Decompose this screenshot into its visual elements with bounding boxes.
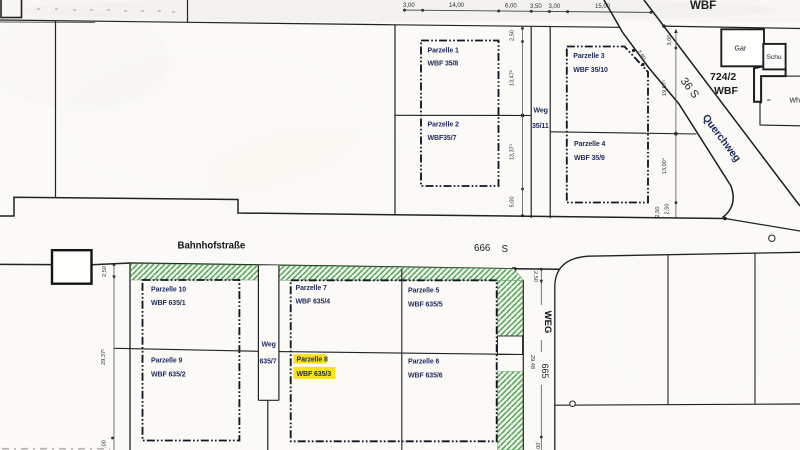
svg-text:WBF 35/10: WBF 35/10 [573, 67, 608, 74]
svg-text:Parzelle 5: Parzelle 5 [408, 288, 440, 295]
svg-text:Weg: Weg [534, 108, 548, 115]
svg-text:Parzelle 10: Parzelle 10 [151, 287, 186, 294]
svg-text:19,67⁵: 19,67⁵ [661, 80, 668, 96]
svg-text:2,50: 2,50 [532, 271, 538, 282]
svg-text:Parzelle 1: Parzelle 1 [428, 48, 460, 55]
svg-text:724/2: 724/2 [710, 71, 736, 83]
svg-text:3,50: 3,50 [530, 4, 542, 10]
svg-text:2,50: 2,50 [665, 204, 671, 215]
svg-text:Weg: Weg [262, 342, 276, 349]
svg-text:Schu: Schu [767, 54, 782, 61]
svg-text:29,37²: 29,37² [101, 349, 107, 365]
svg-text:,00: ,00 [102, 440, 108, 448]
svg-text:Parzelle 7: Parzelle 7 [296, 285, 328, 292]
svg-text:WBF 635/5: WBF 635/5 [408, 302, 443, 309]
svg-text:2,50: 2,50 [655, 207, 661, 218]
svg-text:3,00: 3,00 [549, 4, 561, 10]
svg-text:3,00: 3,00 [403, 3, 415, 9]
svg-text:3,00: 3,00 [667, 35, 673, 46]
svg-text:6,00: 6,00 [505, 4, 517, 10]
svg-text:WBF 635/6: WBF 635/6 [408, 373, 443, 380]
svg-text:13,37⁴: 13,37⁴ [509, 143, 516, 160]
svg-text:WBF: WBF [714, 85, 738, 97]
svg-text:29,48: 29,48 [529, 355, 535, 369]
svg-text:∞: ∞ [767, 98, 771, 104]
svg-text:WBF: WBF [690, 0, 716, 12]
svg-text:Parzelle 9: Parzelle 9 [151, 358, 183, 365]
svg-text:5,00: 5,00 [510, 197, 516, 208]
svg-text:S: S [502, 244, 509, 255]
svg-text:666: 666 [474, 243, 491, 254]
svg-text:,00: ,00 [534, 441, 540, 449]
svg-text:2,50: 2,50 [510, 30, 516, 41]
svg-text:WBF 635/3: WBF 635/3 [297, 371, 332, 378]
svg-text:665: 665 [540, 363, 550, 378]
svg-text:Gar: Gar [735, 46, 747, 53]
svg-text:13,47⁶: 13,47⁶ [509, 70, 516, 86]
svg-text:Parzelle 4: Parzelle 4 [574, 141, 606, 148]
svg-text:Wh: Wh [790, 98, 800, 105]
svg-text:14,00: 14,00 [449, 3, 465, 9]
svg-text:WBF 635/1: WBF 635/1 [151, 300, 186, 307]
svg-text:WBF 635/4: WBF 635/4 [296, 299, 331, 306]
svg-text:Parzelle 8: Parzelle 8 [297, 357, 329, 364]
svg-text:35/11: 35/11 [532, 123, 549, 130]
svg-text:2,50: 2,50 [102, 266, 108, 277]
svg-text:WEG: WEG [542, 311, 553, 334]
svg-text:WBF 635/2: WBF 635/2 [151, 372, 186, 379]
svg-text:635/7: 635/7 [260, 359, 277, 366]
svg-text:Bahnhofstraße: Bahnhofstraße [178, 241, 246, 252]
svg-text:Parzelle 3: Parzelle 3 [573, 53, 605, 60]
svg-text:Parzelle 2: Parzelle 2 [428, 122, 460, 129]
svg-text:WBF 35/9: WBF 35/9 [574, 155, 605, 162]
svg-text:13,00⁴: 13,00⁴ [661, 157, 668, 174]
svg-text:WBF 35/8: WBF 35/8 [428, 61, 459, 68]
svg-text:WBF35/7: WBF35/7 [428, 135, 457, 142]
svg-text:Parzelle 6: Parzelle 6 [408, 359, 440, 366]
